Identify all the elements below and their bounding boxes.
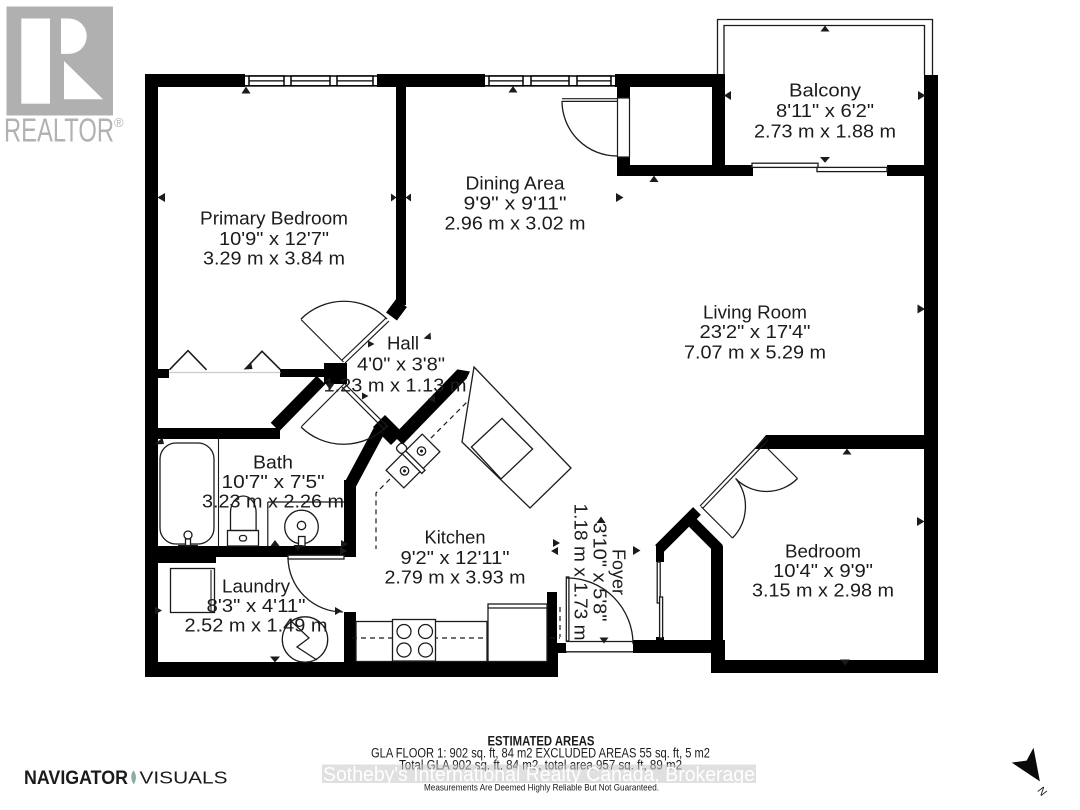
svg-text:9'9" x 9'11": 9'9" x 9'11" [464,193,567,214]
svg-text:9'2" x 12'11": 9'2" x 12'11" [401,547,510,568]
svg-text:10'9" x 12'7": 10'9" x 12'7" [219,228,329,249]
svg-text:3.23 m x 2.26 m: 3.23 m x 2.26 m [202,491,344,512]
svg-text:Bath: Bath [253,452,293,473]
svg-text:Laundry: Laundry [222,576,291,597]
svg-text:1.23 m x 1.13 m: 1.23 m x 1.13 m [324,375,467,396]
svg-text:4'0" x 3'8": 4'0" x 3'8" [357,354,445,375]
svg-text:Measurements Are Deemed Highly: Measurements Are Deemed Highly Reliable … [424,783,659,794]
svg-text:10'4" x 9'9": 10'4" x 9'9" [773,560,873,581]
svg-text:23'2" x 17'4": 23'2" x 17'4" [700,321,811,342]
svg-text:7.07 m x 5.29 m: 7.07 m x 5.29 m [684,342,826,363]
svg-text:Kitchen: Kitchen [425,527,486,548]
svg-text:8'11" x 6'2": 8'11" x 6'2" [776,100,874,121]
svg-text:Foyer: Foyer [609,549,630,595]
svg-text:Living Room: Living Room [703,302,807,323]
svg-text:Dining Area: Dining Area [466,173,566,194]
svg-text:2.79 m x 3.93 m: 2.79 m x 3.93 m [385,567,526,588]
svg-text:3'10" x 5'8": 3'10" x 5'8" [590,523,611,622]
svg-text:Bedroom: Bedroom [785,541,861,562]
svg-text:3.15 m x 2.98 m: 3.15 m x 2.98 m [752,580,894,601]
svg-text:Primary Bedroom: Primary Bedroom [200,208,348,229]
svg-text:2.73 m x 1.88 m: 2.73 m x 1.88 m [754,121,896,142]
svg-text:8'3" x 4'11": 8'3" x 4'11" [207,595,306,616]
svg-text:1.18 m x 1.73 m: 1.18 m x 1.73 m [571,504,592,641]
svg-text:REALTOR: REALTOR [4,112,114,149]
svg-text:Balcony: Balcony [789,80,862,101]
svg-text:2.96 m x 3.02 m: 2.96 m x 3.02 m [445,213,586,234]
svg-text:NAVIGATOR: NAVIGATOR [24,768,128,789]
svg-text:Hall: Hall [387,333,419,354]
svg-text:®: ® [114,115,124,130]
svg-text:3.29 m x 3.84 m: 3.29 m x 3.84 m [203,248,345,269]
svg-text:VISUALS: VISUALS [140,768,228,788]
svg-text:2.52 m x 1.49 m: 2.52 m x 1.49 m [185,615,328,636]
svg-text:10'7" x 7'5": 10'7" x 7'5" [222,471,325,492]
